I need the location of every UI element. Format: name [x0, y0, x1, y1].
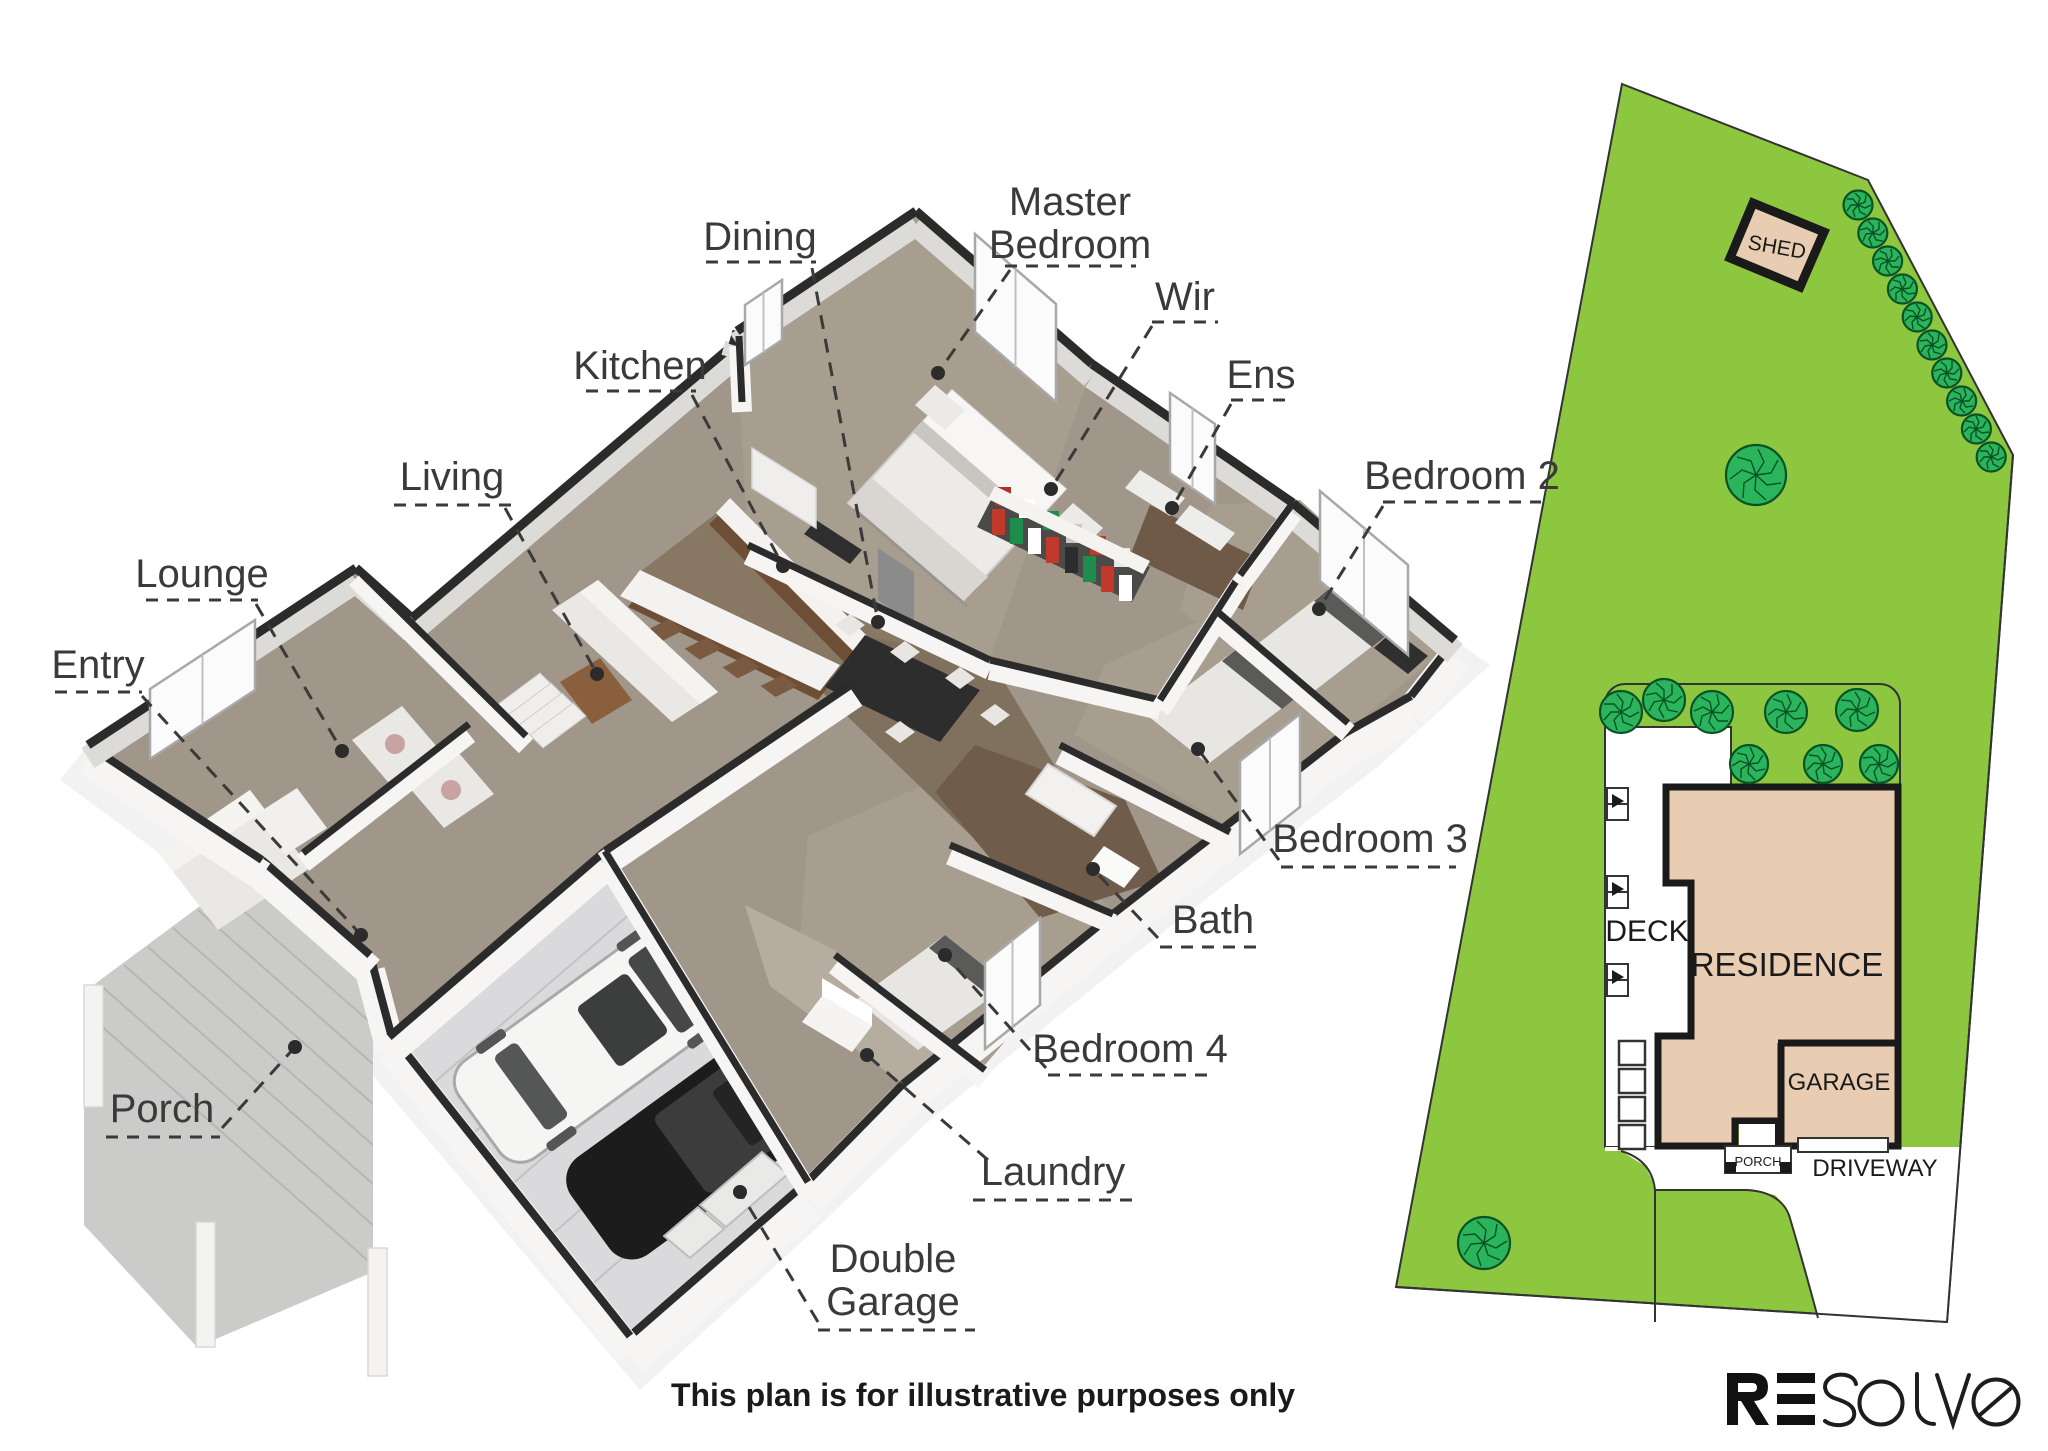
svg-text:Lounge: Lounge — [135, 552, 268, 596]
svg-text:Master: Master — [1009, 180, 1131, 224]
svg-text:Dining: Dining — [703, 215, 816, 259]
svg-text:Entry: Entry — [51, 643, 144, 687]
svg-text:Porch: Porch — [110, 1087, 215, 1131]
svg-text:Laundry: Laundry — [981, 1150, 1126, 1194]
svg-text:Wir: Wir — [1155, 275, 1215, 319]
svg-text:Double: Double — [830, 1237, 957, 1281]
svg-text:Ens: Ens — [1227, 353, 1296, 397]
svg-text:Bedroom 2: Bedroom 2 — [1364, 454, 1560, 498]
svg-text:Bedroom 4: Bedroom 4 — [1032, 1027, 1228, 1071]
svg-text:RESIDENCE: RESIDENCE — [1691, 946, 1884, 983]
svg-text:DECK: DECK — [1605, 915, 1688, 948]
svg-text:Bedroom: Bedroom — [989, 223, 1151, 267]
svg-text:PORCH: PORCH — [1735, 1154, 1782, 1169]
svg-text:GARAGE: GARAGE — [1788, 1069, 1891, 1096]
svg-text:DRIVEWAY: DRIVEWAY — [1812, 1155, 1937, 1182]
svg-text:This plan is for illustrative: This plan is for illustrative purposes o… — [671, 1377, 1295, 1413]
svg-text:Living: Living — [400, 455, 505, 499]
svg-text:Bedroom 3: Bedroom 3 — [1272, 817, 1468, 861]
svg-text:Kitchen: Kitchen — [573, 344, 706, 388]
svg-text:Garage: Garage — [826, 1280, 959, 1324]
svg-text:Bath: Bath — [1172, 898, 1254, 942]
